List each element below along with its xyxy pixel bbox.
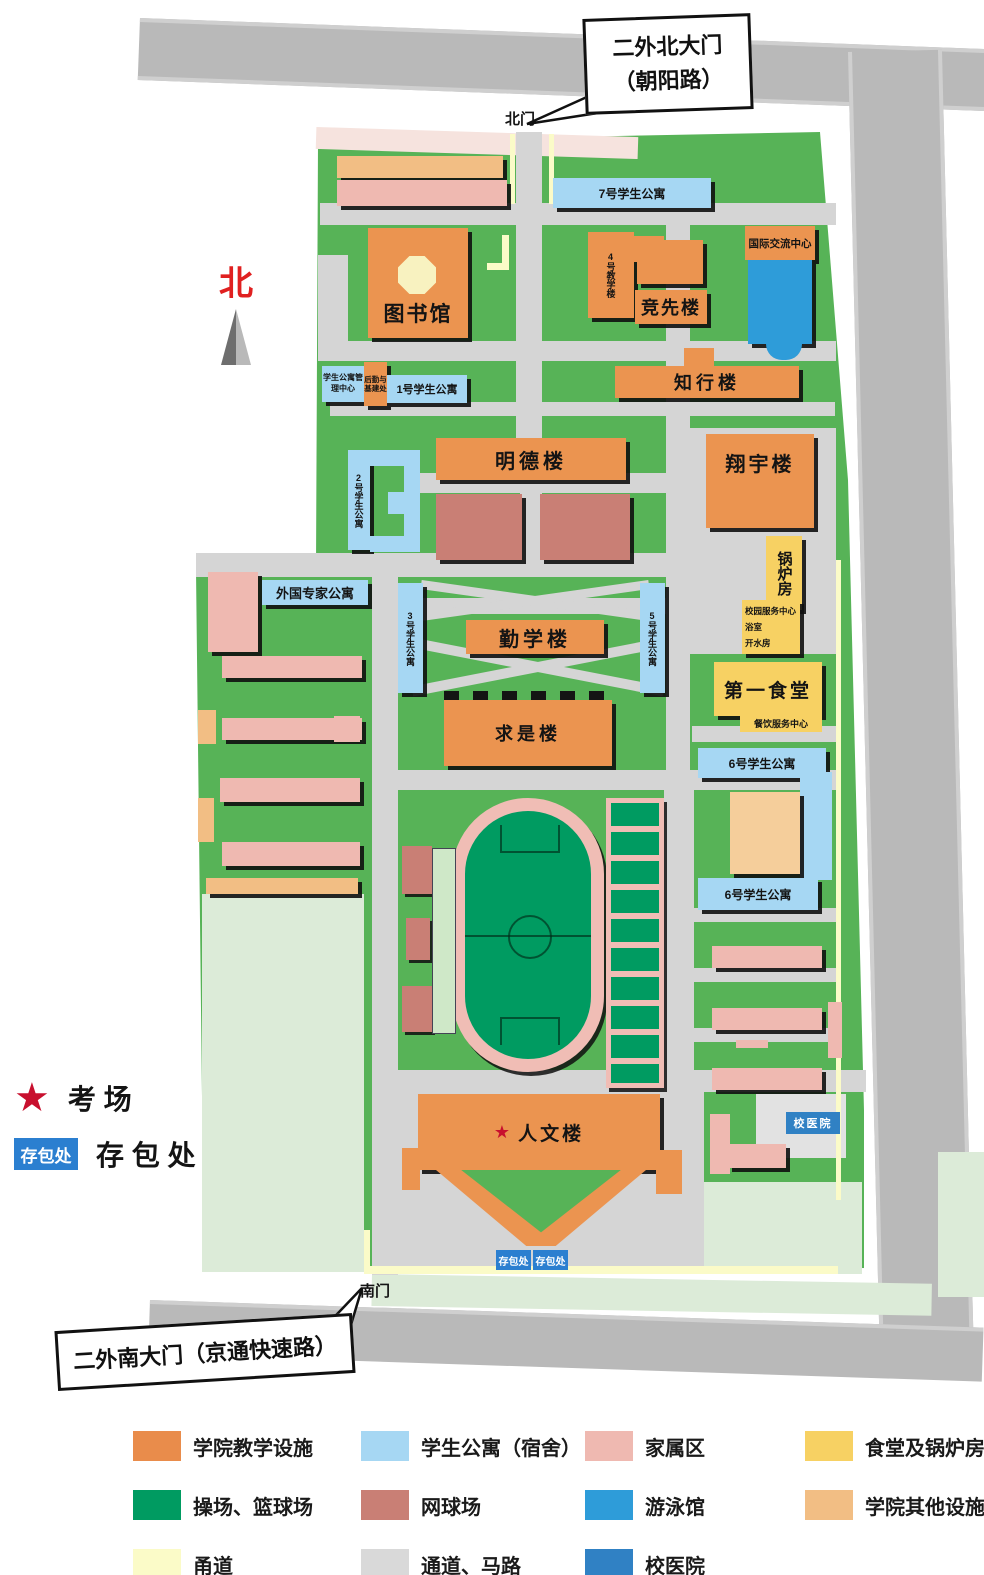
building-canteen1: 第一食堂	[714, 662, 822, 716]
zhixing-label: 知行楼	[674, 369, 740, 395]
building-other-facility	[198, 710, 216, 744]
legend-swatch-family	[585, 1431, 633, 1461]
building-dorm5: 5号学生公寓	[640, 583, 665, 693]
north-callout-line1: 二外北大门	[612, 28, 723, 66]
building-family	[712, 1008, 822, 1030]
building-other-facility	[337, 156, 503, 178]
legend-swatch-dorm	[361, 1431, 409, 1461]
building-family	[220, 778, 360, 802]
legend-swatch-canteen	[805, 1431, 853, 1461]
intl-label: 国际交流中心	[749, 236, 812, 251]
legend-label: 校医院	[645, 1550, 705, 1575]
building-teach4: 4号教学楼	[588, 232, 634, 318]
building-campus-service: 校园服务中心 浴室 开水房	[742, 600, 800, 654]
road-segment	[520, 473, 542, 561]
teach4-label: 4号教学楼	[605, 252, 618, 298]
tennis-court	[436, 494, 522, 560]
legend-label: 食堂及锅炉房	[865, 1432, 984, 1461]
baggage-badge-icon: 存包处	[14, 1138, 78, 1170]
legend-item: 操场、篮球场	[133, 1489, 361, 1521]
road-segment	[330, 402, 835, 416]
basketball-courts	[606, 798, 664, 1088]
exam-star-icon: ★	[14, 1078, 50, 1118]
map-key: ★ 考 场 存包处 存 包 处	[14, 1078, 196, 1190]
dorm6-upper-label: 6号学生公寓	[729, 755, 796, 772]
building-jingxian-wing	[637, 240, 703, 284]
dorm2-label: 2号学生公寓	[353, 473, 366, 528]
jingxian-label: 竞先楼	[641, 294, 701, 320]
dorm5-label: 5号学生公寓	[646, 611, 659, 666]
logistics-label: 后勤与基建处	[364, 375, 387, 393]
building-pool	[748, 260, 812, 344]
legend-label: 通道、马路	[421, 1550, 521, 1575]
walkway	[510, 134, 515, 204]
legend-swatch-field	[133, 1490, 181, 1520]
building-xiangyu: 翔宇楼	[706, 434, 814, 528]
road-segment	[318, 341, 836, 361]
dorm1-label: 1号学生公寓	[396, 381, 457, 397]
building-other-facility	[730, 792, 800, 874]
legend-label: 游泳馆	[645, 1491, 705, 1520]
legend-label: 操场、篮球场	[193, 1491, 313, 1520]
svc-center-label: 校园服务中心	[745, 605, 796, 617]
legend-item: 学院教学设施	[133, 1430, 361, 1462]
building-catering-service: 餐饮服务中心	[740, 714, 822, 732]
legend-label: 学院其他设施	[865, 1491, 984, 1520]
compass-north-label: 北	[214, 256, 258, 305]
building-qiushi: 求是楼	[444, 700, 612, 766]
field-penalty-box-bottom	[500, 1017, 560, 1045]
hospital-label: 校医院	[794, 1115, 833, 1131]
building-dorm1: 1号学生公寓	[387, 375, 467, 403]
building-logistics: 后勤与基建处	[364, 362, 387, 406]
lawn-east-road	[938, 1152, 984, 1297]
legend-item: 校医院	[585, 1548, 805, 1575]
legend-swatch-hospital	[585, 1549, 633, 1575]
library-skylight	[398, 256, 436, 294]
building-dorm2-wing	[370, 536, 420, 552]
building-qinxue: 勤学楼	[466, 620, 604, 654]
legend-label: 网球场	[421, 1491, 481, 1520]
building-family	[736, 1040, 768, 1048]
legend-swatch-pool	[585, 1490, 633, 1520]
qiushi-label: 求是楼	[495, 720, 561, 746]
legend-label: 家属区	[645, 1432, 705, 1461]
building-family	[208, 572, 258, 652]
building-family	[828, 1002, 842, 1058]
building-zhixing-wing	[684, 348, 714, 368]
building-library: 图书馆	[368, 228, 468, 338]
building-boiler: 锅炉房	[766, 536, 802, 610]
exam-label: 考 场	[68, 1078, 132, 1118]
key-exam-row: ★ 考 场	[14, 1078, 196, 1118]
road-north-gate	[516, 132, 542, 482]
walkway	[487, 263, 509, 270]
building-renwen-wing	[402, 1148, 420, 1190]
compass-needle-light	[236, 309, 251, 365]
legend-item: 家属区	[585, 1430, 805, 1462]
building-family	[222, 656, 362, 678]
legend: 学院教学设施 学生公寓（宿舍） 家属区 食堂及锅炉房 操场、篮球场 网球场 游泳…	[133, 1430, 969, 1575]
legend-label: 甬道	[193, 1550, 233, 1575]
legend-item: 通道、马路	[361, 1548, 585, 1575]
canteen-label: 第一食堂	[724, 676, 812, 703]
building-family	[337, 180, 507, 206]
legend-item-empty	[805, 1548, 963, 1575]
building-jingxian: 竞先楼	[635, 290, 707, 324]
dorm3-label: 3号学生公寓	[404, 611, 417, 666]
north-callout-line2: （朝阳路）	[613, 62, 724, 100]
library-label: 图书馆	[384, 298, 453, 328]
building-zhixing: 知行楼	[615, 366, 799, 398]
south-gate-label: 南门	[360, 1280, 390, 1301]
grandstand	[402, 986, 432, 1032]
building-dorm6-lower: 6号学生公寓	[698, 878, 818, 910]
mingde-label: 明德楼	[495, 445, 567, 474]
building-intl-center: 国际交流中心	[745, 226, 815, 260]
mgmt-label: 学生公寓管理中心	[322, 373, 364, 395]
building-foreign-expert: 外国专家公寓	[262, 580, 368, 605]
building-renwen: ★ 人文楼	[418, 1094, 660, 1170]
baggage-label: 存 包 处	[96, 1134, 196, 1174]
compass: 北	[214, 256, 258, 365]
key-baggage-row: 存包处 存 包 处	[14, 1134, 196, 1174]
compass-needle	[214, 309, 258, 365]
field-penalty-box-top	[500, 825, 560, 853]
legend-label: 学生公寓（宿舍）	[421, 1432, 581, 1461]
north-gate-callout: 二外北大门 （朝阳路）	[582, 13, 753, 115]
road-segment	[666, 203, 690, 775]
renwen-exam-star: ★	[494, 1122, 510, 1143]
building-family	[222, 842, 360, 866]
campus-map: 7号学生公寓 图书馆 4号教学楼 竞先楼 国际交流中心 知行楼 学生公寓管理中心…	[0, 0, 984, 1575]
building-family	[712, 1068, 822, 1090]
legend-swatch-tennis	[361, 1490, 409, 1520]
svc-bath-label: 浴室	[745, 621, 762, 633]
legend-label: 学院教学设施	[193, 1432, 313, 1461]
legend-item: 甬道	[133, 1548, 361, 1575]
qinxue-label: 勤学楼	[499, 623, 571, 652]
legend-item: 学院其他设施	[805, 1489, 963, 1521]
compass-needle-dark	[221, 309, 236, 365]
catering-label: 餐饮服务中心	[754, 717, 808, 730]
building-other-facility	[198, 798, 214, 842]
building-hospital: 校医院	[786, 1112, 840, 1134]
foreign-label: 外国专家公寓	[276, 583, 354, 602]
running-track	[452, 798, 604, 1072]
legend-swatch-teaching	[133, 1431, 181, 1461]
field-center-circle	[508, 915, 552, 959]
legend-item: 游泳馆	[585, 1489, 805, 1521]
road-segment	[692, 908, 840, 922]
building-renwen-wing	[656, 1150, 682, 1194]
legend-item: 食堂及锅炉房	[805, 1430, 963, 1462]
grandstand	[406, 918, 430, 960]
walkway	[836, 560, 841, 1200]
road-segment	[318, 255, 348, 355]
boiler-label: 锅炉房	[774, 551, 795, 596]
building-dorm-mgmt: 学生公寓管理中心	[322, 366, 364, 402]
xiangyu-label: 翔宇楼	[726, 448, 795, 477]
building-dorm3: 3号学生公寓	[398, 583, 423, 693]
building-dorm2: 2号学生公寓	[348, 450, 370, 550]
baggage-badge-label: 存包处	[536, 1253, 566, 1268]
road-segment	[692, 968, 840, 982]
svc-water-label: 开水房	[745, 637, 771, 649]
building-other-facility	[206, 878, 358, 894]
road-segment	[664, 775, 694, 1075]
building-family	[710, 1114, 730, 1174]
building-mingde: 明德楼	[436, 438, 626, 480]
baggage-badge-map: 存包处	[496, 1250, 531, 1270]
walkway	[370, 1266, 838, 1274]
building-dorm2-wing	[388, 492, 410, 514]
building-family	[712, 946, 822, 968]
dorm7-label: 7号学生公寓	[599, 185, 666, 202]
lawn-southwest	[202, 894, 364, 1272]
grandstand	[402, 846, 432, 894]
baggage-badge-map: 存包处	[533, 1250, 568, 1270]
side-court	[432, 848, 456, 1034]
legend-swatch-road	[361, 1549, 409, 1575]
dorm6-lower-label: 6号学生公寓	[725, 886, 792, 903]
walkway	[364, 1230, 370, 1274]
legend-item: 学生公寓（宿舍）	[361, 1430, 585, 1462]
building-dorm6-wing	[800, 772, 832, 880]
north-gate-label: 北门	[505, 108, 535, 129]
south-callout-text: 二外南大门（京通快速路）	[72, 1328, 337, 1376]
building-dorm7: 7号学生公寓	[553, 178, 711, 208]
legend-swatch-walkway	[133, 1549, 181, 1575]
tennis-court	[540, 494, 630, 560]
qiushi-crenellation	[444, 691, 612, 700]
building-family	[728, 1144, 786, 1168]
legend-swatch-other	[805, 1490, 853, 1520]
renwen-label: 人文楼	[518, 1119, 584, 1146]
legend-item: 网球场	[361, 1489, 585, 1521]
building-family	[334, 716, 360, 742]
basketball-court-rows	[611, 803, 659, 1083]
baggage-badge-label: 存包处	[499, 1253, 529, 1268]
south-gate-callout: 二外南大门（京通快速路）	[54, 1313, 355, 1391]
